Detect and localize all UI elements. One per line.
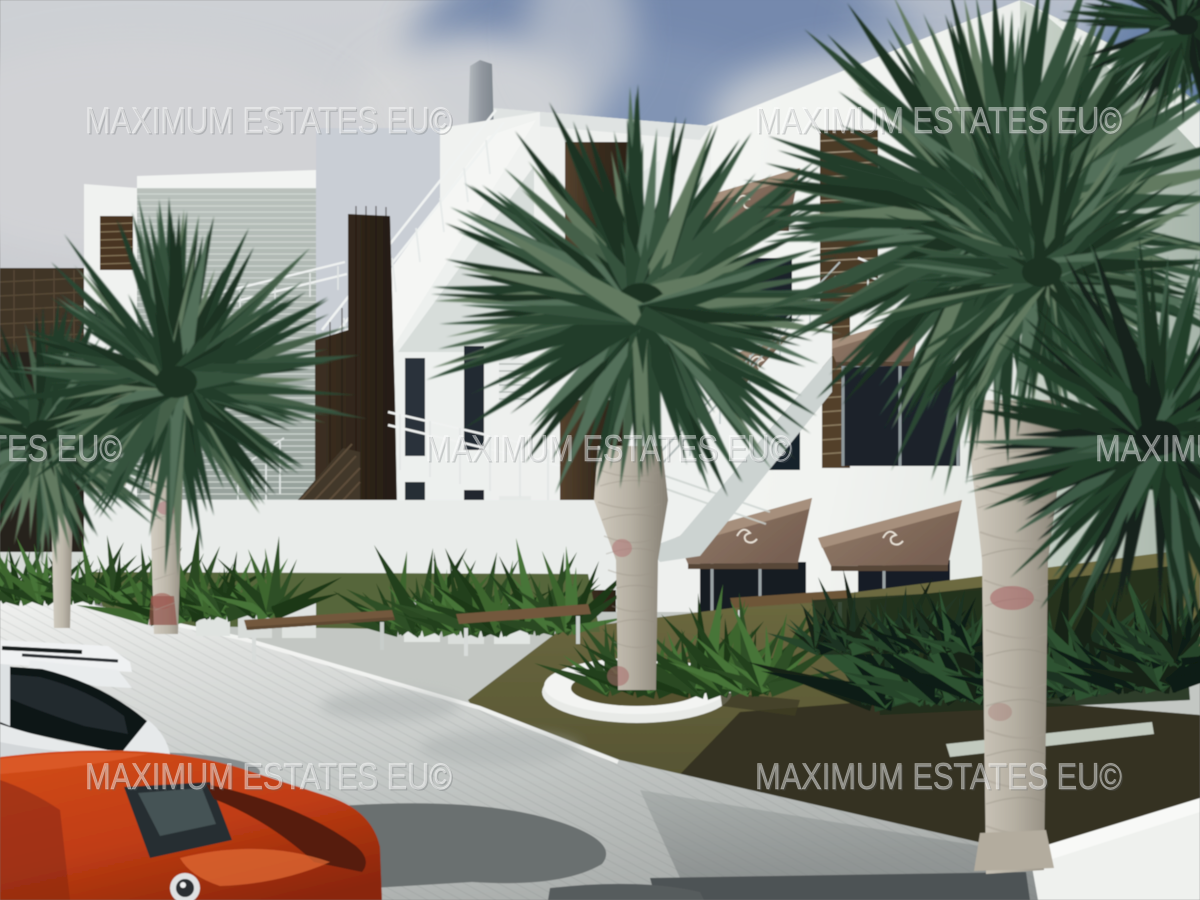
svg-text:MAXIMUM ESTATES EU©: MAXIMUM ESTATES EU©	[425, 428, 792, 469]
svg-text:MAXIMUM ESTATES EU©: MAXIMUM ESTATES EU©	[85, 756, 452, 797]
svg-text:MAXIMUM ESTATES EU©: MAXIMUM ESTATES EU©	[0, 428, 122, 469]
svg-text:MAXIMUM ESTATES EU©: MAXIMUM ESTATES EU©	[85, 100, 452, 141]
svg-text:MAXIMUM ESTATES EU©: MAXIMUM ESTATES EU©	[1095, 428, 1200, 469]
svg-text:MAXIMUM ESTATES EU©: MAXIMUM ESTATES EU©	[755, 100, 1122, 141]
svg-text:MAXIMUM ESTATES EU©: MAXIMUM ESTATES EU©	[755, 756, 1122, 797]
